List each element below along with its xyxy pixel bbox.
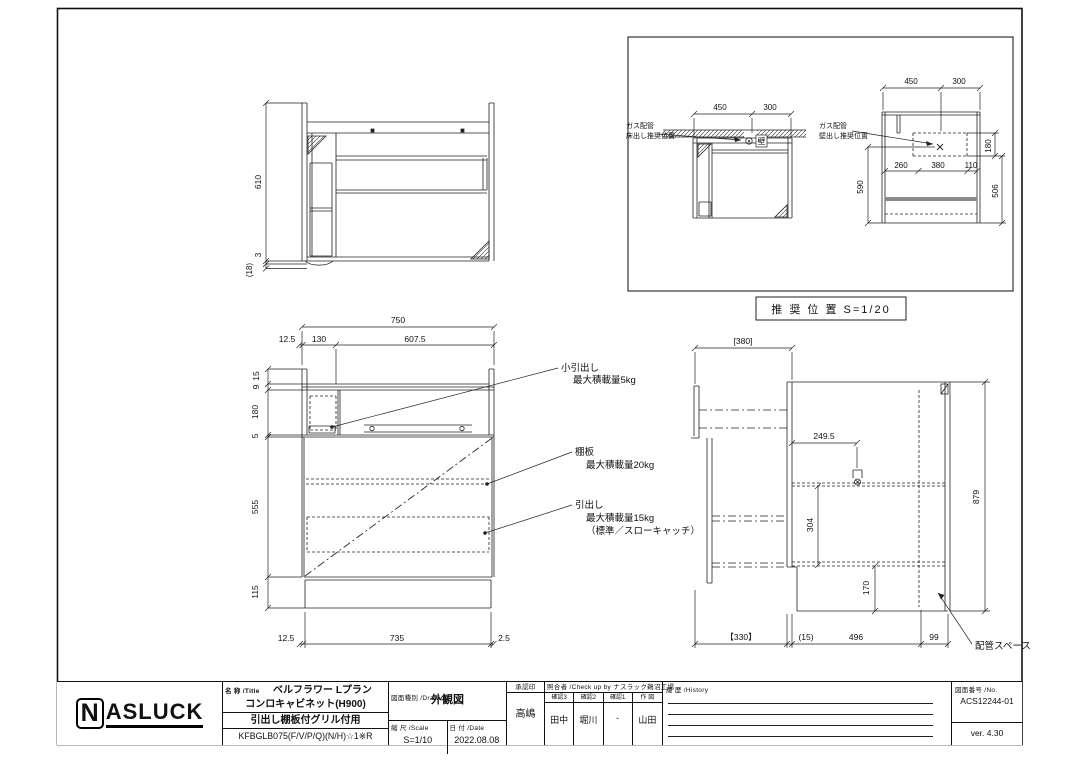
piping-leader-arrow (938, 593, 945, 600)
side-dim-879: 879 (971, 490, 981, 504)
version: ver. 4.30 (952, 728, 1022, 738)
history-line (668, 714, 933, 715)
drawing-canvas: 610 3 (18) 750 12.5 130 607.5 15 9 180 5… (0, 0, 1080, 764)
front-dim-115: 115 (250, 585, 260, 599)
floor-dim-450: 450 (713, 103, 727, 112)
check-col-3: 確認3 田中 (545, 693, 574, 745)
check-col-1-label: 確認1 (604, 693, 632, 703)
inset-border (628, 37, 1013, 291)
product-title-line3: 引出し棚板付グリル付用 (223, 713, 388, 729)
drawing-no-cell: 図面番号 /No. ACS12244-01 ver. 4.30 (952, 682, 1022, 745)
wall-view-rail (885, 197, 977, 201)
side-dim-496: 496 (849, 632, 863, 642)
front-door-swing (305, 438, 492, 576)
side-dim-99: 99 (929, 632, 939, 642)
title-cell: 名 称 /Title ベルフラワー Lプラン コンロキャビネット(H900) 引… (223, 682, 389, 745)
wall-dim-180: 180 (984, 139, 993, 153)
check-col-2-value: 堀川 (574, 713, 602, 726)
front-view (265, 324, 572, 648)
plan-corner-brace-br (471, 241, 489, 259)
check-col-1: 確認1 - (604, 693, 633, 745)
wall-dim-380: 380 (931, 161, 945, 170)
check-cell: 照合者 /Check up by ナスラック鵜沼工場 確認3 田中 確認2 堀川… (545, 682, 663, 745)
date-value: 2022.08.08 (448, 735, 507, 745)
floor-dim-300: 300 (763, 103, 777, 112)
front-dim-735: 735 (390, 633, 404, 643)
floor-gas-label-1: ガス配管 (626, 121, 654, 130)
history-line (668, 736, 933, 737)
floor-view-brace-br (775, 205, 787, 217)
check-col-draw-value: 山田 (633, 713, 662, 726)
plan-corner-brace-tl (308, 136, 326, 154)
wall-view-dims (865, 85, 1006, 226)
side-dim-249-5: 249.5 (813, 431, 835, 441)
approval-label: 承認印 (507, 682, 544, 693)
wall-dim-506: 506 (991, 184, 1000, 198)
grill-screw-left (370, 426, 374, 430)
side-linework (691, 382, 950, 611)
check-col-1-value: - (604, 713, 632, 723)
front-dim-750: 750 (391, 315, 405, 325)
leader-dot-2 (486, 483, 489, 486)
check-col-draw-label: 作 図 (633, 693, 662, 703)
annotation-small-drawer-load: 最大積載量5kg (573, 374, 636, 386)
inset-caption: 推 奨 位 置 S=1/20 (771, 302, 890, 316)
grill-screw-right (460, 426, 464, 430)
front-dim-15: 15 (251, 371, 261, 381)
title-block: NASLUCK 名 称 /Title ベルフラワー Lプラン コンロキャビネット… (57, 681, 1022, 745)
wall-dim-110: 110 (965, 161, 978, 170)
annotation-drawer-load: 最大積載量15kg (586, 512, 654, 524)
plan-dim-3: 3 (254, 252, 263, 257)
gas-outlet-cross (937, 144, 943, 150)
front-leaders (332, 368, 572, 533)
side-view (691, 345, 990, 648)
scale-label: 縮 尺 /Scale (391, 722, 429, 732)
sheet-frame (58, 9, 1023, 745)
check-col-draw: 作 図 山田 (633, 693, 662, 745)
product-model-number: KFBGLB075(F/V/P/Q)(N/H)☆1※R (223, 729, 388, 744)
wall-gas-label-2: 壁出し推奨位置 (819, 131, 868, 140)
leader-dot-1 (331, 426, 334, 429)
product-title-line2: コンロキャビネット(H900) (223, 698, 388, 713)
annotation-small-drawer: 小引出し (561, 362, 599, 374)
plan-dim-lines (263, 100, 307, 272)
plan-linework (302, 103, 494, 265)
wall-view-hidden (885, 133, 977, 214)
nasluck-logo: NASLUCK (57, 682, 223, 745)
floor-view-linework (663, 130, 806, 218)
scale-value: S=1/10 (389, 735, 447, 745)
front-dim-lines (265, 324, 497, 648)
front-dim-180: 180 (250, 405, 260, 419)
gas-pipe-center (748, 140, 750, 142)
front-dim-2-5: 2.5 (498, 633, 510, 643)
side-hidden-lines (792, 390, 945, 607)
front-dim-607-5: 607.5 (404, 334, 426, 344)
check-col-3-label: 確認3 (545, 693, 573, 703)
approval-cell: 承認印 高嶋 (507, 682, 545, 745)
piping-leader (938, 593, 972, 644)
check-col-2-label: 確認2 (574, 693, 602, 703)
drawing-no-label: 図面番号 /No. (955, 684, 997, 694)
logo-rest: ASLUCK (106, 700, 204, 728)
wall-dim-590: 590 (856, 180, 865, 194)
plan-dim-18: (18) (245, 263, 254, 278)
front-linework (302, 369, 494, 608)
front-dim-12-5-top: 12.5 (279, 334, 296, 344)
drawing-no: ACS12244-01 (952, 696, 1022, 706)
wall-dim-260: 260 (894, 161, 908, 170)
plan-view (263, 100, 494, 272)
side-dim-170: 170 (861, 581, 871, 595)
history-line (668, 703, 933, 704)
front-dim-12-5-bottom: 12.5 (278, 633, 295, 643)
history-cell: 履 歴 /History (663, 682, 952, 745)
check-col-3-value: 田中 (545, 713, 573, 726)
product-title-line1: ベルフラワー Lプラン (273, 685, 372, 696)
front-dim-130: 130 (312, 334, 326, 344)
check-label: 照合者 /Check up by ナスラック鵜沼工場 (545, 682, 662, 693)
history-label: 履 歴 /History (666, 684, 708, 694)
front-dim-5: 5 (250, 433, 260, 438)
plan-screws (371, 129, 464, 132)
wall-hatch-left (663, 130, 744, 137)
plan-dim-610: 610 (253, 175, 263, 189)
side-dim-380: [380] (734, 336, 753, 346)
history-line (668, 725, 933, 726)
annotation-shelf: 棚板 (575, 446, 595, 458)
front-dim-555: 555 (250, 500, 260, 514)
drawing-no-divider (952, 722, 1022, 723)
front-dim-9: 9 (251, 384, 261, 389)
wall-dim-300: 300 (952, 77, 966, 86)
annotation-piping-space: 配管スペース (975, 640, 1031, 652)
annotation-shelf-load: 最大積載量20kg (586, 459, 654, 471)
side-dim-304: 304 (805, 518, 815, 532)
drawing-sheet: 610 3 (18) 750 12.5 130 607.5 15 9 180 5… (0, 0, 1080, 764)
wall-mark: 壁 (758, 136, 766, 146)
logo-n: N (76, 698, 104, 729)
leader-dot-3 (484, 532, 487, 535)
annotation-drawer: 引出し (575, 499, 604, 511)
front-hidden-lines (306, 396, 490, 552)
approval-stamp: 高嶋 (507, 705, 544, 720)
wall-gas-label-1: ガス配管 (819, 121, 847, 130)
floor-gas-label-2: 床出し推奨位置 (626, 131, 675, 140)
date-label: 日 付 /Date (450, 722, 485, 732)
annotation-drawer-type: （標準／スローキャッチ） (586, 525, 700, 537)
check-col-2: 確認2 堀川 (574, 693, 603, 745)
side-dim-330: 【330】 (725, 632, 756, 642)
drawing-label: 図面種別 /Drawing (391, 692, 448, 702)
wall-dim-450: 450 (904, 77, 918, 86)
drawing-type-cell: 図面種別 /Drawing 外観図 縮 尺 /Scale S=1/10 日 付 … (389, 682, 507, 745)
side-dim-15: (15) (798, 632, 813, 642)
name-label: 名 称 /Title (225, 683, 260, 698)
